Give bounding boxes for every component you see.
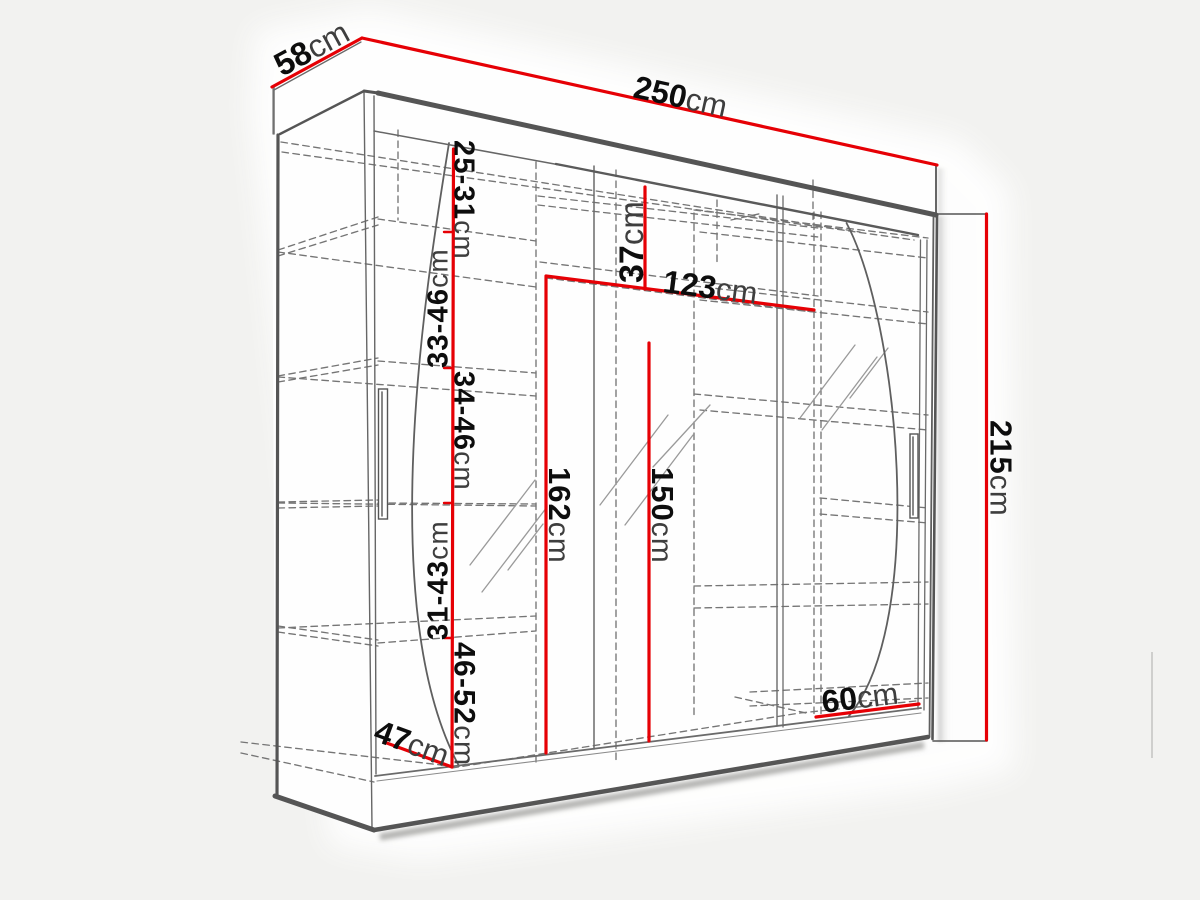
svg-text:46-52cm: 46-52cm [448,642,481,767]
svg-text:31-43cm: 31-43cm [423,520,455,640]
svg-text:162cm: 162cm [542,467,577,564]
svg-text:25-31cm: 25-31cm [448,140,480,260]
svg-text:150cm: 150cm [645,467,680,564]
svg-text:215cm: 215cm [984,420,1019,517]
svg-text:37cm: 37cm [613,201,651,283]
svg-text:33-46cm: 33-46cm [423,248,455,368]
svg-text:34-46cm: 34-46cm [448,371,480,491]
